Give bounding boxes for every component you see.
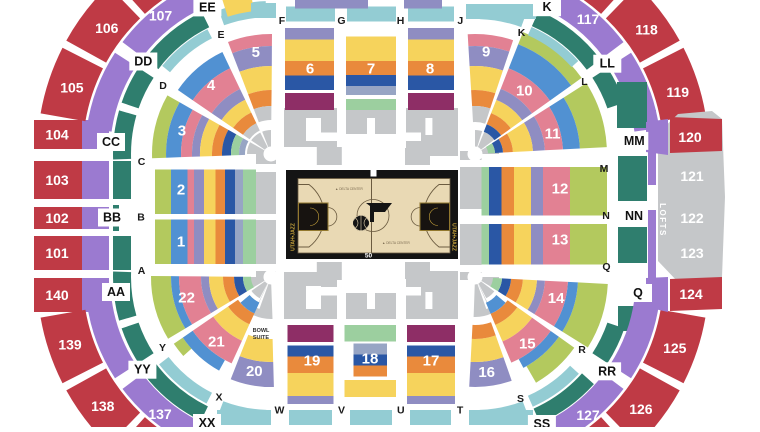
svg-text:V: V — [338, 405, 345, 417]
svg-text:EE: EE — [199, 0, 216, 14]
svg-text:SUITE: SUITE — [253, 335, 270, 341]
svg-text:RR: RR — [598, 364, 616, 378]
svg-text:127: 127 — [576, 407, 600, 423]
svg-text:14: 14 — [548, 290, 565, 307]
svg-text:1: 1 — [177, 234, 185, 251]
svg-text:12: 12 — [552, 181, 569, 198]
svg-text:2: 2 — [177, 182, 185, 199]
svg-text:104: 104 — [45, 127, 69, 143]
svg-text:N: N — [602, 210, 610, 222]
svg-text:10: 10 — [516, 83, 533, 100]
svg-text:11: 11 — [545, 126, 561, 143]
svg-text:LOFTS: LOFTS — [658, 203, 667, 237]
svg-text:BB: BB — [103, 211, 121, 225]
svg-text:21: 21 — [208, 334, 225, 351]
svg-text:124: 124 — [679, 286, 703, 302]
svg-text:S: S — [517, 393, 524, 405]
svg-text:AA: AA — [107, 285, 125, 299]
svg-text:▲ DELTA CENTER: ▲ DELTA CENTER — [382, 241, 410, 245]
svg-text:MM: MM — [624, 134, 645, 148]
svg-text:15: 15 — [519, 336, 536, 353]
svg-text:R: R — [578, 344, 586, 356]
svg-text:18: 18 — [362, 351, 379, 368]
svg-text:19: 19 — [304, 353, 321, 370]
svg-text:K: K — [518, 27, 526, 39]
svg-text:4: 4 — [207, 77, 216, 94]
svg-text:LL: LL — [600, 57, 616, 71]
svg-text:L: L — [581, 76, 588, 88]
svg-text:17: 17 — [423, 353, 440, 370]
svg-text:138: 138 — [91, 398, 115, 414]
svg-text:NN: NN — [625, 209, 643, 223]
svg-text:B: B — [137, 212, 145, 224]
svg-text:U: U — [397, 405, 405, 417]
svg-text:137: 137 — [148, 406, 172, 422]
svg-text:125: 125 — [663, 340, 687, 356]
svg-text:8: 8 — [426, 61, 434, 78]
svg-text:DD: DD — [134, 55, 152, 69]
svg-text:K: K — [542, 0, 551, 14]
svg-text:YY: YY — [134, 363, 151, 377]
svg-text:101: 101 — [45, 245, 69, 261]
svg-text:118: 118 — [635, 21, 658, 37]
svg-text:XX: XX — [199, 416, 216, 427]
svg-text:120: 120 — [678, 129, 702, 145]
svg-text:Q: Q — [602, 261, 610, 273]
svg-text:6: 6 — [306, 61, 314, 78]
svg-text:117: 117 — [577, 11, 600, 27]
svg-text:G: G — [337, 15, 345, 27]
svg-text:A: A — [138, 265, 146, 277]
svg-text:CC: CC — [102, 135, 120, 149]
svg-text:105: 105 — [60, 79, 84, 95]
svg-text:J: J — [457, 15, 463, 27]
svg-text:119: 119 — [666, 84, 689, 100]
svg-text:13: 13 — [552, 232, 569, 249]
svg-text:Q: Q — [633, 286, 643, 300]
svg-text:UTAH•JAZZ: UTAH•JAZZ — [451, 223, 457, 251]
svg-text:5: 5 — [252, 44, 260, 61]
svg-text:T: T — [457, 405, 464, 417]
svg-text:▲ DELTA CENTER: ▲ DELTA CENTER — [335, 187, 363, 191]
svg-text:F: F — [279, 15, 286, 27]
svg-text:X: X — [215, 392, 222, 404]
svg-text:Y: Y — [159, 342, 166, 354]
svg-text:D: D — [159, 80, 167, 92]
svg-text:C: C — [138, 156, 146, 168]
svg-text:126: 126 — [629, 401, 653, 417]
svg-text:16: 16 — [478, 364, 495, 381]
svg-text:9: 9 — [482, 44, 490, 61]
svg-text:M: M — [600, 163, 609, 175]
svg-text:140: 140 — [45, 287, 69, 303]
svg-text:103: 103 — [45, 172, 69, 188]
svg-text:BOWL: BOWL — [253, 328, 270, 334]
svg-text:122: 122 — [680, 210, 704, 226]
svg-text:106: 106 — [95, 20, 119, 36]
svg-text:E: E — [217, 29, 224, 41]
svg-text:SS: SS — [534, 417, 551, 427]
svg-text:22: 22 — [178, 290, 195, 307]
svg-text:UTAH•JAZZ: UTAH•JAZZ — [291, 223, 297, 251]
svg-text:20: 20 — [246, 363, 263, 380]
svg-text:121: 121 — [680, 168, 704, 184]
svg-text:50: 50 — [365, 253, 373, 260]
svg-text:123: 123 — [680, 245, 704, 261]
svg-text:7: 7 — [367, 61, 375, 78]
svg-text:3: 3 — [178, 123, 186, 140]
svg-text:H: H — [397, 15, 405, 27]
svg-text:139: 139 — [58, 336, 82, 352]
svg-text:107: 107 — [149, 8, 173, 24]
svg-text:W: W — [274, 405, 284, 417]
svg-text:102: 102 — [45, 210, 69, 226]
